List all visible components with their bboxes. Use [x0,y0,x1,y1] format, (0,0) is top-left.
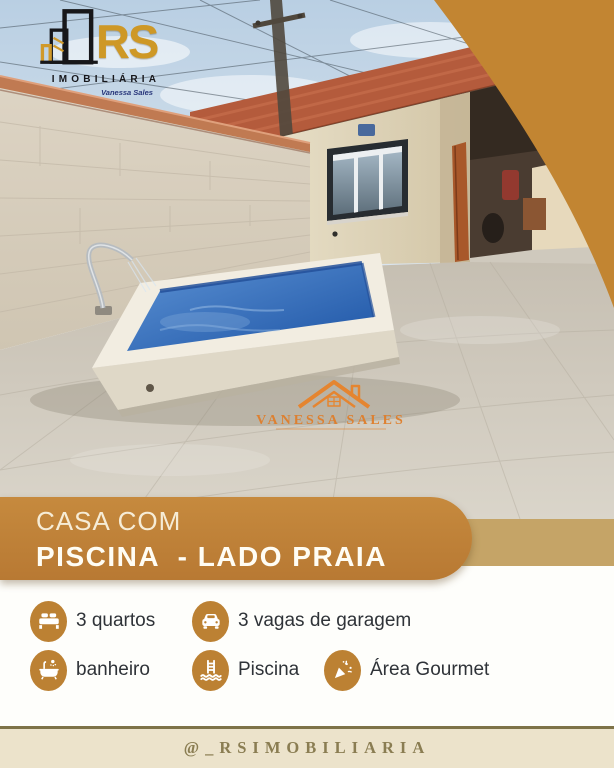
party-popper-icon [324,650,361,691]
window [327,139,408,225]
feature-bedrooms: 3 quartos [30,600,155,642]
door-frame [452,142,469,262]
house-number-plaque [358,124,375,136]
feature-label: 3 vagas de garagem [238,610,411,632]
pool-ladder-icon [192,650,229,691]
feature-pool: Piscina [192,649,299,691]
car-icon [192,601,229,642]
agency-logo: RS IMOBILIÁRIA Vanessa Sales [30,6,182,108]
flyer-root: VANESSA SALES RS IMOBILIÁRIA Vanessa Sal… [0,0,614,768]
buildings-outline-icon [38,8,100,70]
logo-signature: Vanessa Sales [72,88,182,97]
banner-line1: CASA COM [36,506,472,537]
instagram-handle: @_RSIMOBILIARIA [184,729,431,767]
title-banner: CASA COM PISCINA - LADO PRAIA [0,497,472,580]
bed-icon [30,601,67,642]
footer-bar: @_RSIMOBILIARIA [0,726,614,768]
bathtub-icon [30,650,67,691]
watermark-name: VANESSA SALES [256,413,406,428]
feature-label: Área Gourmet [370,659,489,681]
property-photo: VANESSA SALES RS IMOBILIÁRIA Vanessa Sal… [0,0,614,519]
feature-gourmet-area: Área Gourmet [324,649,489,691]
feature-label: 3 quartos [76,610,155,632]
feature-bathroom: banheiro [30,649,150,691]
logo-word: IMOBILIÁRIA [30,74,182,85]
logo-monogram: RS [96,14,157,69]
feature-label: banheiro [76,659,150,681]
banner-line2: PISCINA - LADO PRAIA [36,541,472,573]
feature-garage: 3 vagas de garagem [192,600,411,642]
feature-label: Piscina [238,659,299,681]
